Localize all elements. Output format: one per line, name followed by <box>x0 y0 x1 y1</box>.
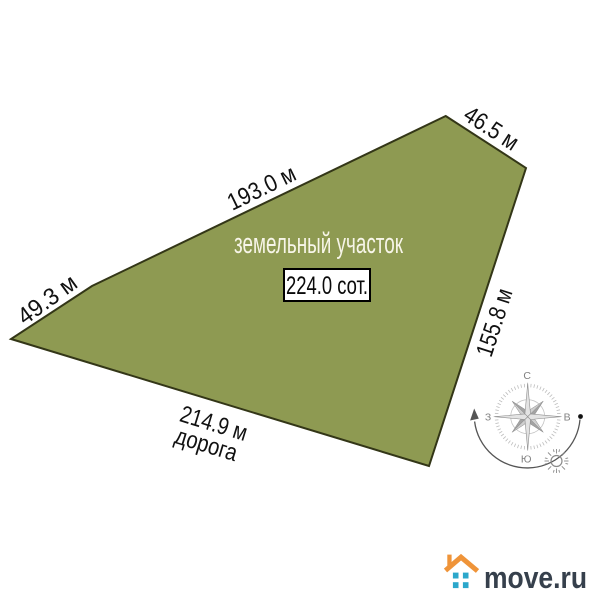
svg-text:Ю: Ю <box>521 454 532 466</box>
svg-text:move.ru: move.ru <box>484 560 587 595</box>
svg-text:земельный участок: земельный участок <box>234 228 403 260</box>
svg-text:З: З <box>485 412 491 424</box>
svg-text:224.0 сот.: 224.0 сот. <box>286 272 368 300</box>
svg-text:В: В <box>564 412 571 424</box>
svg-text:С: С <box>523 370 531 382</box>
